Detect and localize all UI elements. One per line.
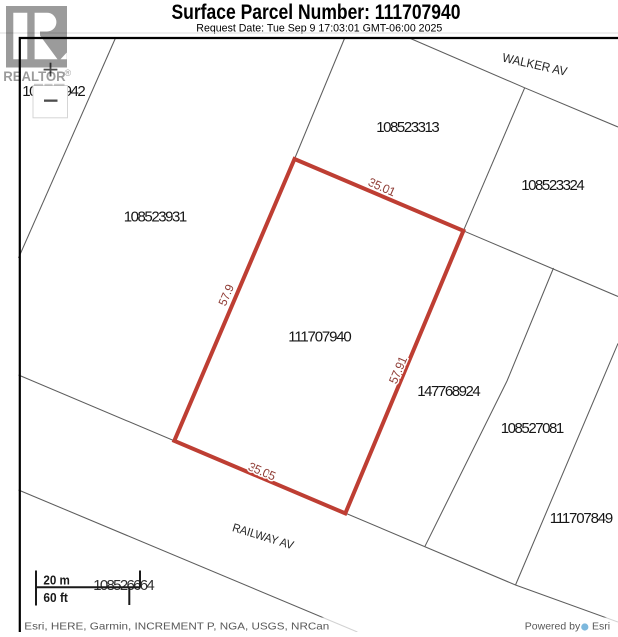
svg-text:108527081: 108527081 bbox=[501, 420, 565, 437]
svg-text:REALTOR: REALTOR bbox=[3, 68, 65, 84]
svg-text:108526664: 108526664 bbox=[93, 577, 155, 594]
svg-text:Powered by: Powered by bbox=[525, 621, 581, 633]
svg-text:Esri, HERE, Garmin, INCREMENT: Esri, HERE, Garmin, INCREMENT P, NGA, US… bbox=[24, 621, 329, 633]
svg-text:111707849: 111707849 bbox=[550, 510, 614, 527]
svg-text:®: ® bbox=[65, 68, 72, 78]
svg-text:108523324: 108523324 bbox=[521, 177, 585, 194]
svg-text:108523313: 108523313 bbox=[376, 119, 440, 136]
svg-text:147768924: 147768924 bbox=[417, 383, 481, 400]
svg-text:111707940: 111707940 bbox=[288, 329, 352, 346]
svg-text:Surface Parcel Number: 1117079: Surface Parcel Number: 111707940 bbox=[172, 0, 461, 24]
svg-text:108523931: 108523931 bbox=[124, 209, 188, 226]
svg-text:Esri: Esri bbox=[592, 621, 610, 633]
svg-text:20 m: 20 m bbox=[43, 572, 70, 587]
svg-text:60 ft: 60 ft bbox=[43, 590, 68, 605]
